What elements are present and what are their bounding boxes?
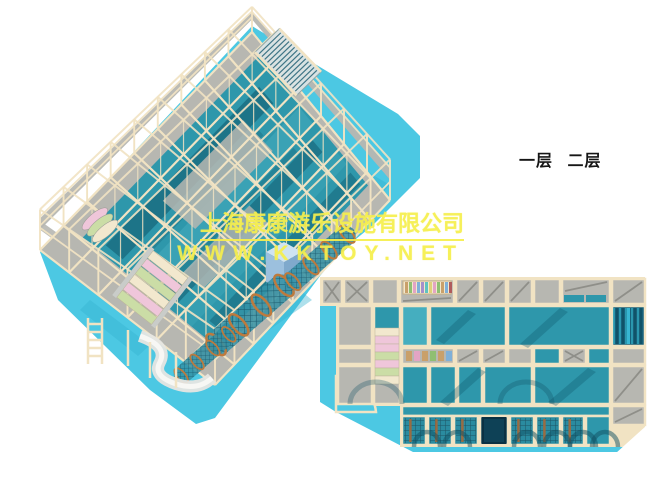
plan-cell-navy [480,416,508,445]
plan-cell-g [338,306,372,346]
plan-cell-gd [456,348,480,364]
frame-ladder [88,318,102,364]
plan-cell-g [612,348,645,364]
plan-cell-gd [612,366,645,404]
plan-cell-gd [612,279,645,304]
plan-cell-gd [482,279,506,304]
plan-cell-gd [508,279,532,304]
plan-cell-t [402,366,428,404]
plan-rainbow-stairs [375,328,399,384]
plan-cell-t [588,348,610,364]
plan-cell-pit [612,306,645,346]
plan-cell-g [372,279,398,304]
plan-cell-tl [402,306,428,346]
plan-cell-gd [456,279,480,304]
plan-cell-gteal2 [562,279,610,304]
plan-cell-gd [482,348,506,364]
label-floor-1: 一层 [519,153,553,170]
plan-cell-g [534,279,560,304]
label-floor-2: 二层 [567,153,601,170]
plan-cell-gd [612,406,645,425]
top-down-floor-plan-view [320,277,648,453]
plan-cell-gx [344,279,370,304]
plan-cell-gx [562,348,586,364]
floor-level-labels: 一层 二层 [519,147,601,171]
plan-cell-t [402,406,610,416]
playground-3d-render [0,0,650,500]
plan-cell-obst [402,348,454,364]
plan-cell-gx [322,279,342,304]
plan-cell-roller [400,279,454,304]
plan-cell-t [534,348,560,364]
product-showcase-image: 一层 二层 上海康康游乐设施有限公司 WWW.KKTOY.NET [0,0,650,500]
plan-cell-g [508,348,532,364]
plan-cell-g [338,348,372,364]
